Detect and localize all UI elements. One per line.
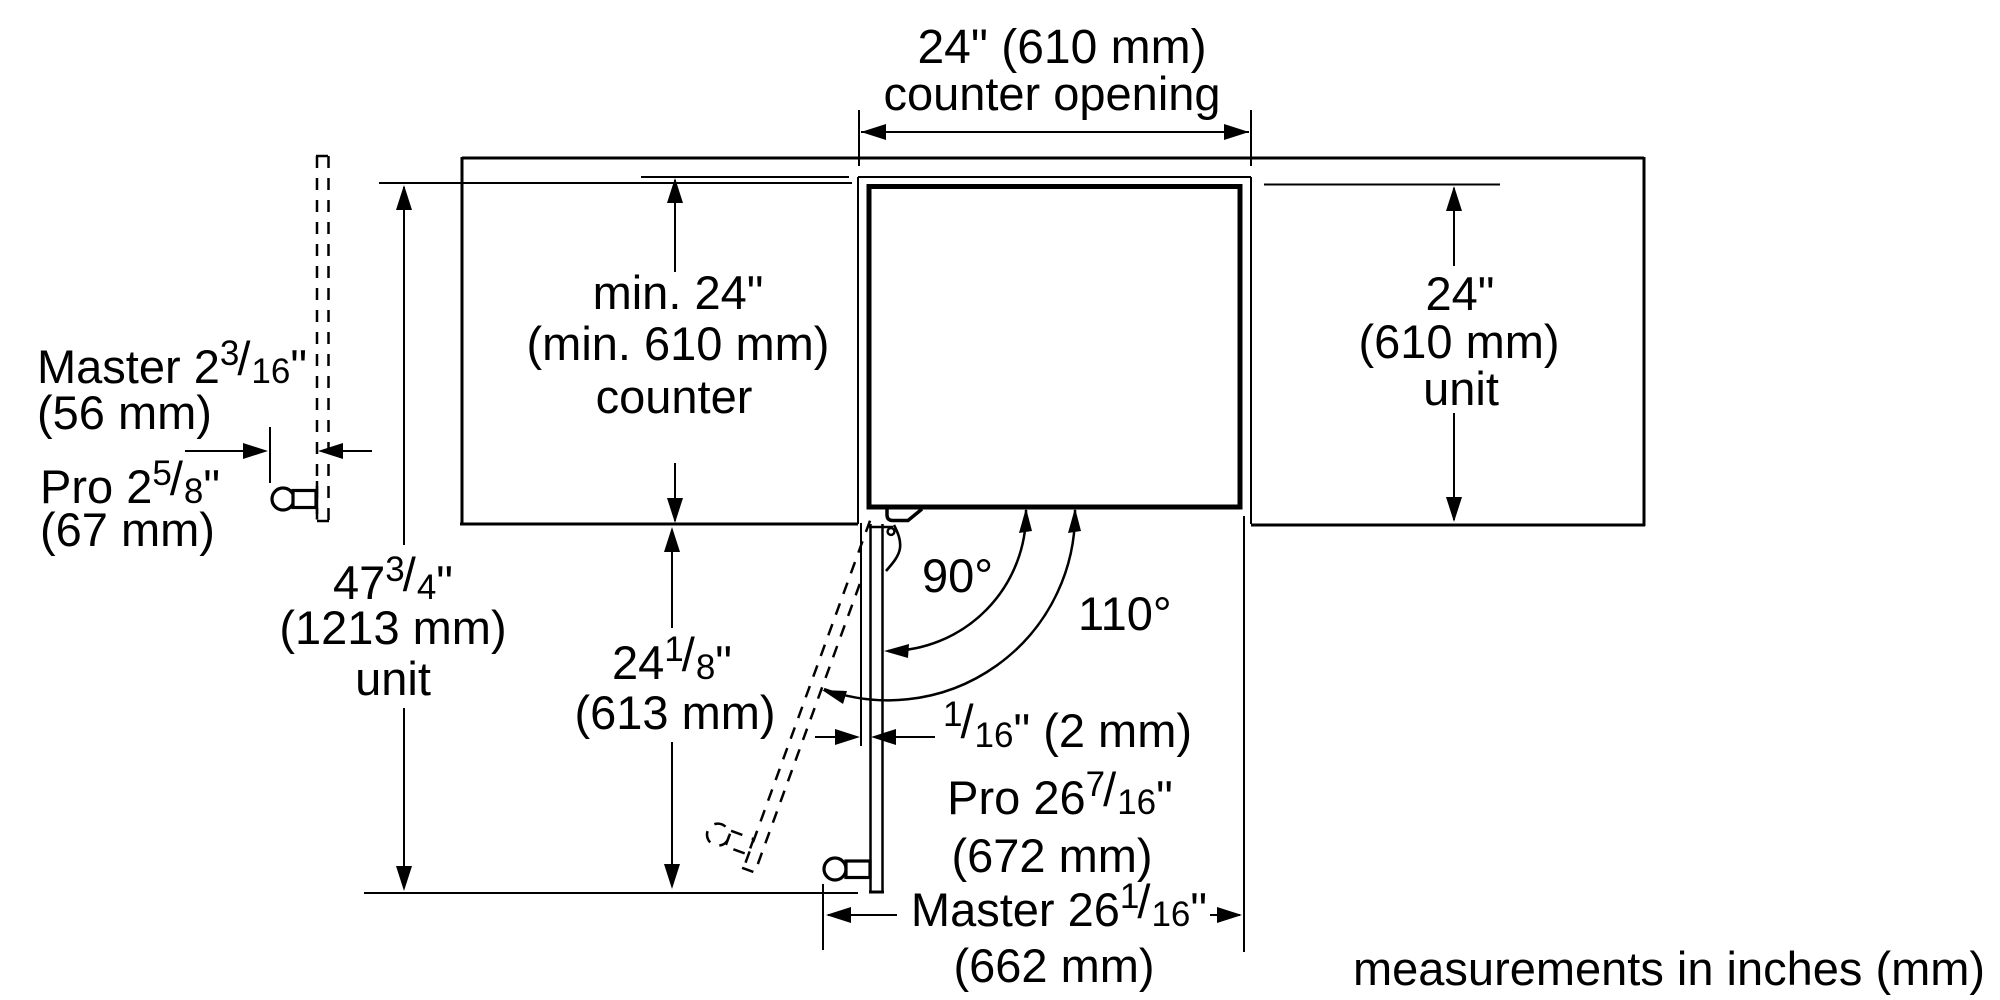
- svg-text:counter: counter: [596, 370, 753, 423]
- svg-text:measurements in inches (mm): measurements in inches (mm): [1353, 942, 1985, 995]
- svg-text:(662 mm): (662 mm): [953, 939, 1154, 992]
- svg-text:(610 mm): (610 mm): [1358, 315, 1559, 368]
- svg-text:(56 mm): (56 mm): [37, 386, 212, 439]
- svg-text:90°: 90°: [922, 549, 993, 602]
- svg-text:counter opening: counter opening: [883, 67, 1220, 120]
- svg-text:110°: 110°: [1078, 587, 1172, 640]
- svg-text:24": 24": [1426, 267, 1495, 320]
- svg-text:unit: unit: [355, 652, 431, 705]
- svg-text:(67 mm): (67 mm): [40, 503, 215, 556]
- svg-text:unit: unit: [1423, 362, 1499, 415]
- svg-text:(613 mm): (613 mm): [574, 686, 775, 739]
- svg-text:(1213 mm): (1213 mm): [279, 601, 506, 654]
- svg-text:(min. 610 mm): (min. 610 mm): [527, 317, 830, 370]
- svg-text:min. 24": min. 24": [593, 266, 764, 319]
- svg-text:(672 mm): (672 mm): [951, 829, 1152, 882]
